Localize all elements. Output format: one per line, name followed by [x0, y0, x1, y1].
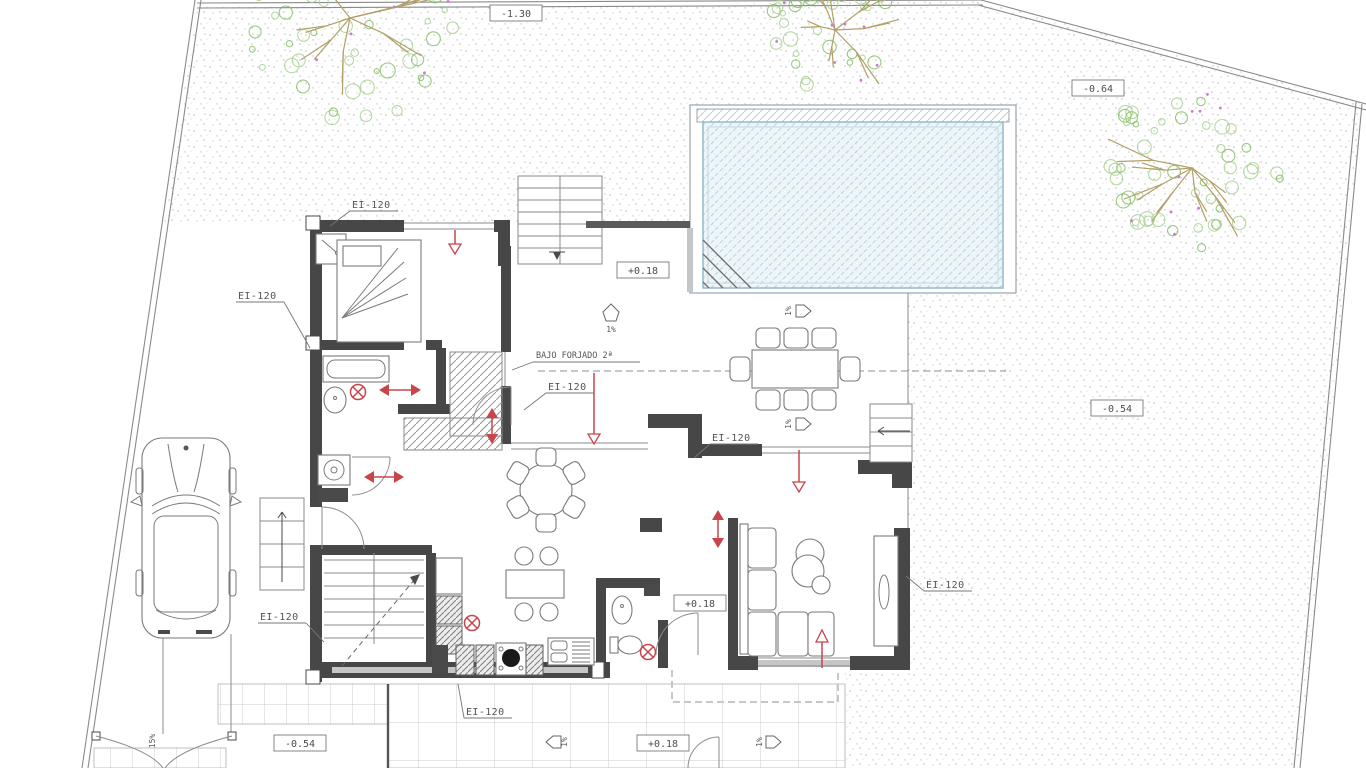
under-slab-label: BAJO FORJADO 2ª — [536, 351, 613, 361]
fire-rating-label: EI-120 — [466, 707, 505, 718]
car — [131, 438, 241, 638]
swimming-pool — [690, 105, 1016, 293]
porch-steps — [260, 498, 304, 590]
utility-unit — [318, 488, 348, 502]
toilet — [618, 636, 642, 654]
fire-rating-label: EI-120 — [548, 382, 587, 393]
fire-rating-label: EI-120 — [238, 291, 277, 302]
sofa-back — [740, 524, 748, 654]
kitchen-sink — [548, 638, 594, 665]
washbasin — [612, 596, 632, 624]
slope-label: 1% — [606, 325, 616, 334]
slope-label: 1% — [784, 419, 793, 429]
toilet-tank — [610, 637, 618, 653]
elevation-marker: -1.30 — [490, 5, 542, 21]
fire-rating-label: EI-120 — [712, 433, 751, 444]
fridge — [436, 558, 462, 594]
floor-plan-drawing: 1% 1% 1% 1% 1% 15% EI-120 EI-120 EI-120 … — [0, 0, 1366, 768]
elevation-marker: -0.54 — [1091, 400, 1143, 416]
coffee-table — [812, 576, 830, 594]
fire-rating-label: EI-120 — [352, 200, 391, 211]
elevation-marker: +0.18 — [674, 595, 726, 611]
exterior-stairs-right — [870, 404, 912, 462]
fire-rating-label: EI-120 — [260, 612, 299, 623]
elevation-marker: +0.18 — [617, 262, 669, 278]
svg-text:+0.18: +0.18 — [648, 739, 678, 750]
elevation-marker: -0.54 — [274, 735, 326, 751]
slope-label: 1% — [784, 306, 793, 316]
svg-text:+0.18: +0.18 — [628, 266, 658, 277]
floor-plan-sheet: 1% 1% 1% 1% 1% 15% EI-120 EI-120 EI-120 … — [0, 0, 1366, 768]
slope-label: 1% — [755, 737, 764, 747]
svg-text:-0.64: -0.64 — [1083, 84, 1113, 95]
tv-cabinet — [874, 536, 898, 646]
pillow — [343, 246, 381, 266]
elevation-marker: +0.18 — [637, 735, 689, 751]
svg-text:-0.54: -0.54 — [1102, 404, 1132, 415]
exterior-stairs-top — [518, 176, 602, 264]
ramp-slope-label: 15% — [148, 734, 157, 749]
elevation-marker: -0.64 — [1072, 80, 1124, 96]
svg-text:-1.30: -1.30 — [501, 9, 531, 20]
svg-text:-0.54: -0.54 — [285, 739, 315, 750]
slope-label: 1% — [560, 737, 569, 747]
svg-text:+0.18: +0.18 — [685, 599, 715, 610]
fire-rating-label: EI-120 — [926, 580, 965, 591]
table — [752, 350, 838, 388]
